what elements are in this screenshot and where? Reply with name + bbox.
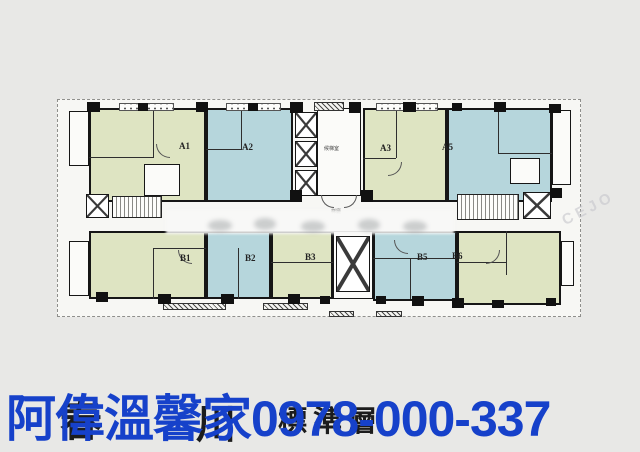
column [290, 102, 303, 113]
unit-a1-label: A1 [179, 141, 190, 151]
unit-a1-bathroom [144, 164, 180, 196]
blur-smudge [208, 220, 232, 231]
unit-a2-label: A2 [242, 142, 253, 152]
partition-wall [271, 262, 333, 263]
unit-a1-bath-annex [69, 111, 89, 166]
unit-b3-label: B3 [305, 252, 316, 262]
balcony-hatch [263, 303, 308, 310]
partition-wall [498, 108, 499, 154]
column [550, 188, 562, 198]
agent-contact-watermark: 阿偉溫馨家0978-000-337 [6, 379, 638, 451]
column [248, 103, 258, 111]
unit-a5 [447, 108, 552, 202]
unit-b1-label: B1 [180, 253, 191, 263]
blur-smudge [403, 221, 427, 232]
partition-wall [89, 157, 153, 158]
elevator-shaft-icon [295, 141, 317, 167]
column [288, 294, 300, 304]
unit-a2 [206, 108, 293, 202]
partition-wall [206, 149, 241, 150]
column [221, 294, 234, 304]
unit-b2-label: B2 [245, 253, 256, 263]
left-staircase [112, 196, 162, 218]
unit-a3 [363, 108, 447, 202]
unit-b6-label: B6 [452, 251, 463, 261]
column [452, 103, 462, 111]
column [290, 190, 302, 202]
column [492, 300, 504, 308]
blur-smudge [358, 219, 380, 231]
elevator-lobby [317, 108, 361, 196]
elevator-lobby-label: 候梯室 [324, 145, 339, 152]
partition-wall [410, 258, 411, 299]
right-staircase [457, 194, 519, 220]
roof-hatch [314, 102, 344, 111]
partition-wall [238, 248, 239, 299]
unit-a5-bathroom [510, 158, 540, 184]
door-arc [321, 195, 334, 208]
partition-wall [457, 262, 506, 263]
unit-b6-bath-annex [561, 241, 574, 286]
blur-smudge [301, 221, 325, 232]
unit-b5-label: B5 [417, 252, 428, 262]
unit-b6 [457, 231, 561, 305]
unit-b3 [271, 231, 333, 299]
column [320, 296, 330, 304]
column [412, 296, 424, 306]
column [349, 102, 361, 113]
balcony-hatch [376, 311, 402, 317]
partition-wall [506, 231, 507, 275]
partition-wall [396, 108, 397, 158]
right-shaft-icon [523, 192, 551, 219]
column [158, 294, 171, 304]
column [196, 102, 208, 112]
partition-wall [153, 108, 154, 158]
partition-wall [153, 248, 206, 249]
door-arc [344, 195, 357, 208]
left-shaft-icon [86, 194, 109, 218]
column [494, 102, 506, 112]
unit-a5-label: A5 [442, 142, 453, 152]
partition-wall [153, 248, 154, 299]
floor-plan-sheet: 候梯室 梯廳 [57, 99, 581, 317]
partition-wall [363, 158, 396, 159]
screenshot-root: 候梯室 梯廳 [0, 0, 640, 452]
elevator-shaft-icon [295, 112, 317, 138]
partition-wall [373, 258, 457, 259]
column [87, 102, 100, 112]
column [138, 103, 148, 111]
balcony-hatch [329, 311, 354, 317]
unit-a3-label: A3 [380, 143, 391, 153]
central-shaft-icon [336, 236, 370, 292]
column [376, 296, 386, 304]
right-utility-annex [552, 110, 571, 185]
unit-b1-bath-annex [69, 241, 89, 296]
unit-b5 [373, 231, 457, 301]
unit-b1 [89, 231, 206, 299]
column [452, 298, 464, 308]
partition-wall [498, 153, 552, 154]
column [549, 104, 561, 113]
column [361, 190, 373, 202]
column [546, 298, 556, 306]
balcony-hatch [163, 303, 226, 310]
column [96, 292, 108, 302]
column [403, 102, 416, 112]
blur-smudge [254, 218, 276, 230]
